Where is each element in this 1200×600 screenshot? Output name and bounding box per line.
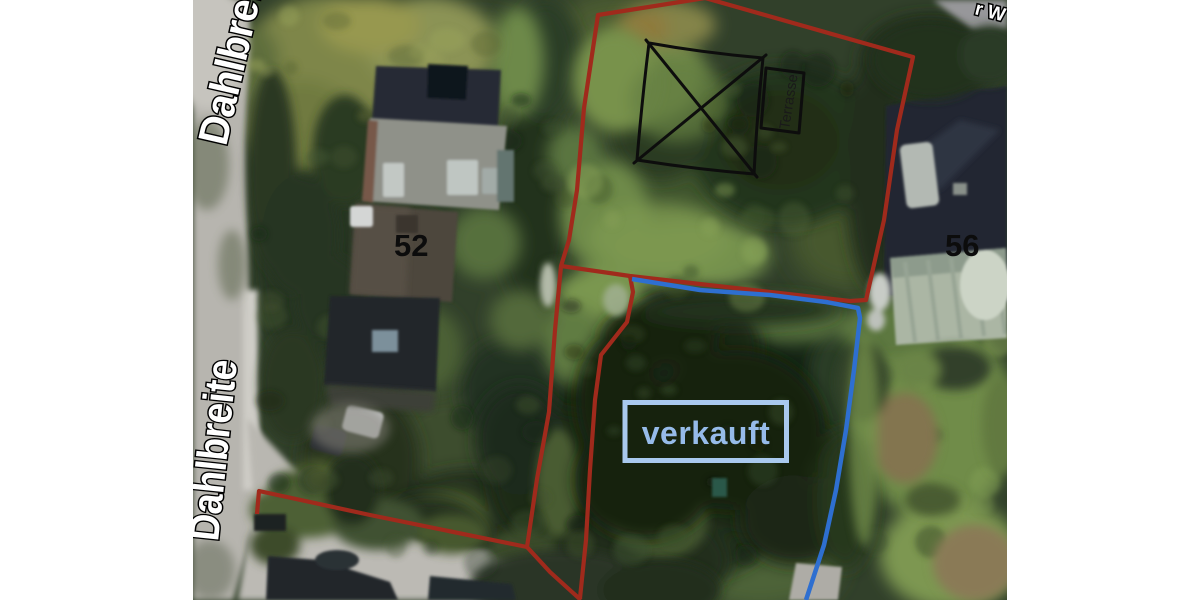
svg-text:52: 52 bbox=[394, 228, 428, 263]
svg-text:56: 56 bbox=[945, 228, 979, 263]
svg-text:verkauft: verkauft bbox=[642, 415, 771, 451]
